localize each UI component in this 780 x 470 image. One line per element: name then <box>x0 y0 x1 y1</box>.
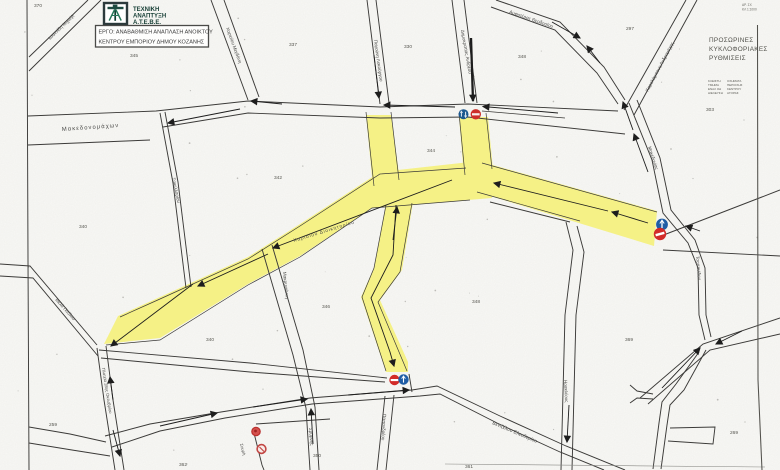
svg-text:ΑΝΑΠΤΥΞΗ: ΑΝΑΠΤΥΞΗ <box>133 14 166 20</box>
svg-text:ΑΡ. ΣΧ: ΑΡ. ΣΧ <box>742 3 753 7</box>
svg-text:348: 348 <box>518 54 526 60</box>
svg-text:345: 345 <box>130 53 138 59</box>
svg-text:ΤΕΧΝΙΚΗ: ΤΕΧΝΙΚΗ <box>133 7 159 13</box>
svg-text:Ηρακλέους: Ηρακλέους <box>563 380 570 404</box>
svg-text:340: 340 <box>206 337 214 343</box>
svg-text:ΠΡΟΣΩΡΙΝΕΣ: ΠΡΟΣΩΡΙΝΕΣ <box>709 37 753 44</box>
svg-text:ΚΕΝΤΡΟΥ ΕΜΠΟΡΙΟΥ ΔΗΜΟΥ ΚΟΖΑΝΗΣ: ΚΕΝΤΡΟΥ ΕΜΠΟΡΙΟΥ ΔΗΜΟΥ ΚΟΖΑΝΗΣ <box>99 40 205 46</box>
svg-text:ΑΓΟΡΑΣ: ΑΓΟΡΑΣ <box>727 91 739 95</box>
svg-text:ΡΥΘΜΙΣΕΙΣ: ΡΥΘΜΙΣΕΙΣ <box>709 55 746 62</box>
svg-text:344: 344 <box>427 148 435 154</box>
svg-text:269: 269 <box>730 430 738 436</box>
svg-text:348: 348 <box>472 299 480 305</box>
svg-text:346: 346 <box>322 304 330 310</box>
svg-text:ΕΡΓΟ: ΑΝΑΒΑΘΜΙΣΗ ΑΝΑΠΛΑΣΗ ΑΝΟΙ: ΕΡΓΟ: ΑΝΑΒΑΘΜΙΣΗ ΑΝΑΠΛΑΣΗ ΑΝΟΙΚΤΟΥ <box>99 30 214 36</box>
svg-text:362: 362 <box>179 462 187 468</box>
svg-text:350: 350 <box>313 453 321 459</box>
svg-text:ΚΛ 1:1000: ΚΛ 1:1000 <box>742 8 757 12</box>
svg-text:259: 259 <box>49 422 57 428</box>
svg-text:ΚΥΚΛΟΦΟΡΙΑΚΕΣ: ΚΥΚΛΟΦΟΡΙΑΚΕΣ <box>709 46 768 53</box>
svg-text:330: 330 <box>404 44 412 50</box>
svg-text:ΔΙΕΛΕΥΣΗ: ΔΙΕΛΕΥΣΗ <box>708 91 723 95</box>
svg-text:337: 337 <box>289 42 297 48</box>
svg-text:340: 340 <box>79 224 87 230</box>
svg-text:342: 342 <box>274 175 282 181</box>
svg-text:361: 361 <box>465 464 473 470</box>
svg-text:369: 369 <box>625 337 633 343</box>
svg-text:297: 297 <box>626 26 634 32</box>
svg-text:303: 303 <box>706 107 714 113</box>
svg-text:370: 370 <box>34 3 42 9</box>
